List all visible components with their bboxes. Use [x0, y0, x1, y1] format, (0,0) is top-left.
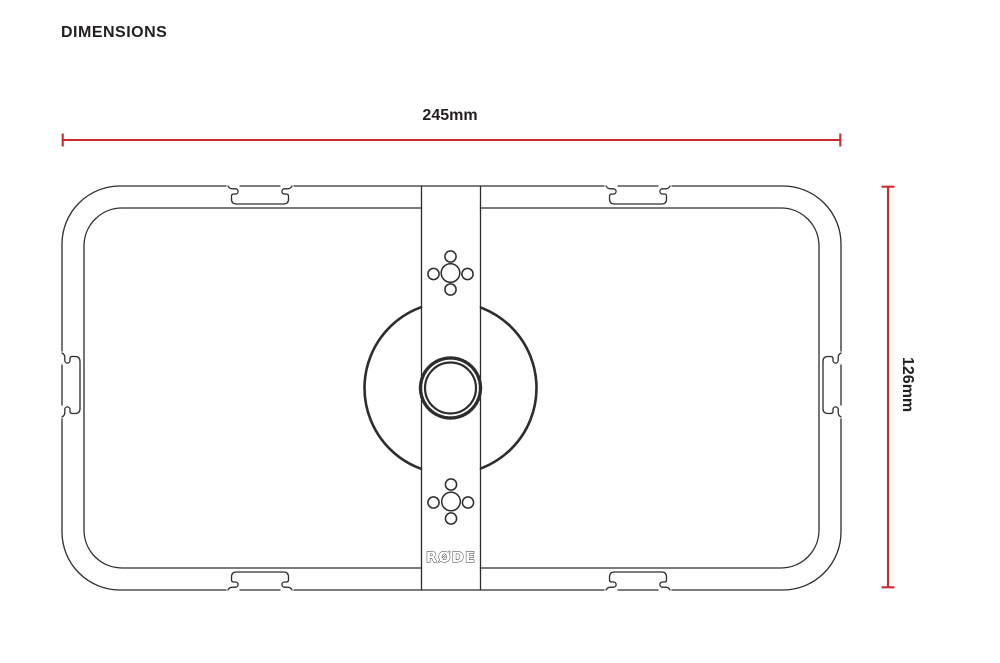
dimensions-page: DIMENSIONS 245mm 126mm — [0, 0, 1000, 663]
width-dimension-line — [63, 134, 841, 147]
slot-top-right — [605, 184, 672, 204]
rode-logo-text: RØDE — [426, 550, 476, 566]
slot-left-side — [60, 352, 80, 419]
slot-bottom-left — [227, 572, 294, 592]
frame-drawing: RØDE — [60, 184, 843, 592]
height-dimension-line — [882, 187, 895, 588]
product-outline-drawing: RØDE — [0, 0, 1000, 663]
center-bar-body — [422, 187, 480, 589]
slot-bottom-right — [605, 572, 672, 592]
slot-right-side — [823, 352, 843, 419]
slot-top-left — [227, 184, 294, 204]
